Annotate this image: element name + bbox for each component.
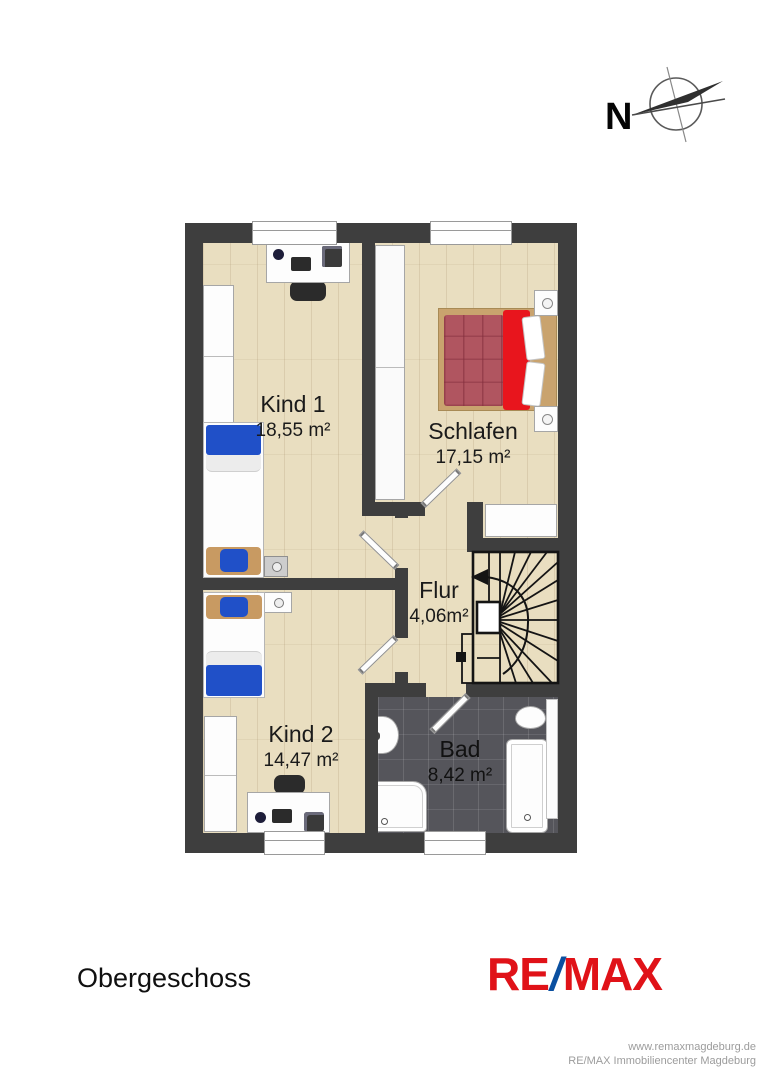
wall-bad-top-left — [365, 683, 426, 697]
north-label: N — [605, 96, 632, 138]
wall-outer-top — [185, 223, 577, 243]
toilet — [515, 706, 546, 729]
logo-max: MAX — [563, 948, 662, 1000]
lamp-icon — [274, 598, 284, 608]
dresser-schlafen — [485, 504, 557, 537]
remax-logo: RE/MAX — [487, 951, 662, 997]
compass-rose: N — [595, 55, 755, 155]
pillow — [521, 315, 545, 361]
room-area: 8,42 m² — [428, 764, 492, 788]
room-name: Flur — [409, 576, 468, 605]
room-label-kind2: Kind 2 14,47 m² — [264, 720, 339, 773]
company-text: RE/MAX Immobiliencenter Magdeburg — [568, 1054, 756, 1068]
room-label-bad: Bad 8,42 m² — [428, 735, 492, 788]
keyboard-kind1 — [291, 257, 311, 271]
wall-outer-right — [558, 223, 577, 853]
wardrobe-kind1 — [203, 285, 234, 425]
bed-kind2 — [203, 592, 265, 698]
website-text: www.remaxmagdeburg.de — [568, 1040, 756, 1054]
pillow — [521, 361, 545, 407]
blanket-kind1 — [206, 425, 261, 455]
room-area: 18,55 m² — [256, 419, 331, 443]
wall-outer-bottom — [185, 833, 577, 853]
room-label-schlafen: Schlafen 17,15 m² — [428, 417, 518, 470]
wardrobe-schlafen — [375, 245, 405, 500]
floor-label: Obergeschoss — [77, 963, 251, 994]
wardrobe-kind2 — [204, 716, 237, 832]
logo-re: RE — [487, 948, 549, 1000]
drain-icon — [381, 818, 388, 825]
monitor-kind2 — [304, 812, 324, 832]
wall-kind1-kind2 — [185, 578, 401, 590]
nightstand-schlafen-bottom — [534, 406, 558, 432]
desk-lamp-icon — [273, 249, 284, 260]
desk-kind2 — [247, 792, 330, 833]
wall-schlafen-south — [362, 502, 425, 516]
drain-icon — [524, 814, 531, 821]
pillow-kind2 — [220, 597, 248, 617]
lamp-icon — [272, 562, 282, 572]
keyboard-kind2 — [272, 809, 292, 823]
room-label-flur: Flur 4,06m² — [409, 576, 468, 629]
shower — [371, 781, 427, 832]
radiator — [546, 699, 558, 819]
room-name: Schlafen — [428, 417, 518, 446]
wardrobe-divider — [376, 367, 404, 368]
wall-bad-left — [365, 697, 378, 833]
room-name: Kind 2 — [264, 720, 339, 749]
quilt-maroon — [444, 315, 504, 406]
room-name: Kind 1 — [256, 390, 331, 419]
wall-outer-left — [185, 223, 203, 853]
window-kind2 — [264, 831, 325, 855]
window-kind1 — [252, 221, 337, 245]
desk-chair-kind1 — [290, 281, 326, 301]
blanket-kind2 — [206, 665, 262, 696]
wardrobe-divider — [205, 775, 236, 776]
desk-kind1 — [266, 242, 350, 283]
room-area: 4,06m² — [409, 605, 468, 629]
room-label-kind1: Kind 1 18,55 m² — [256, 390, 331, 443]
floor-plan-page: N — [0, 0, 763, 1080]
logo-slash: / — [549, 948, 563, 1000]
room-name: Bad — [428, 735, 492, 764]
footer-credits: www.remaxmagdeburg.de RE/MAX Immobilienc… — [568, 1040, 756, 1068]
stairs-marker — [456, 652, 466, 662]
lamp-icon — [542, 298, 553, 309]
stairs-landing — [477, 602, 500, 633]
lamp-icon — [542, 414, 553, 425]
bed-kind1 — [203, 422, 264, 578]
pillow-kind1 — [220, 549, 248, 572]
nightstand-schlafen-top — [534, 290, 558, 316]
monitor-kind1 — [322, 246, 342, 267]
bathtub — [506, 739, 548, 833]
window-bad — [424, 831, 486, 855]
double-bed-schlafen — [438, 308, 557, 411]
wardrobe-divider — [204, 356, 233, 357]
nightstand-kind2 — [264, 592, 292, 613]
sheet-fold-kind1 — [206, 455, 261, 472]
window-schlafen — [430, 221, 512, 245]
desk-lamp-icon — [255, 812, 266, 823]
room-area: 14,47 m² — [264, 749, 339, 773]
sheet-fold-kind2 — [206, 651, 262, 666]
nightstand-kind1 — [264, 556, 288, 577]
room-area: 17,15 m² — [428, 446, 518, 470]
wall-flur-stub-top — [395, 502, 408, 518]
wall-kind1-schlafen — [362, 243, 375, 503]
